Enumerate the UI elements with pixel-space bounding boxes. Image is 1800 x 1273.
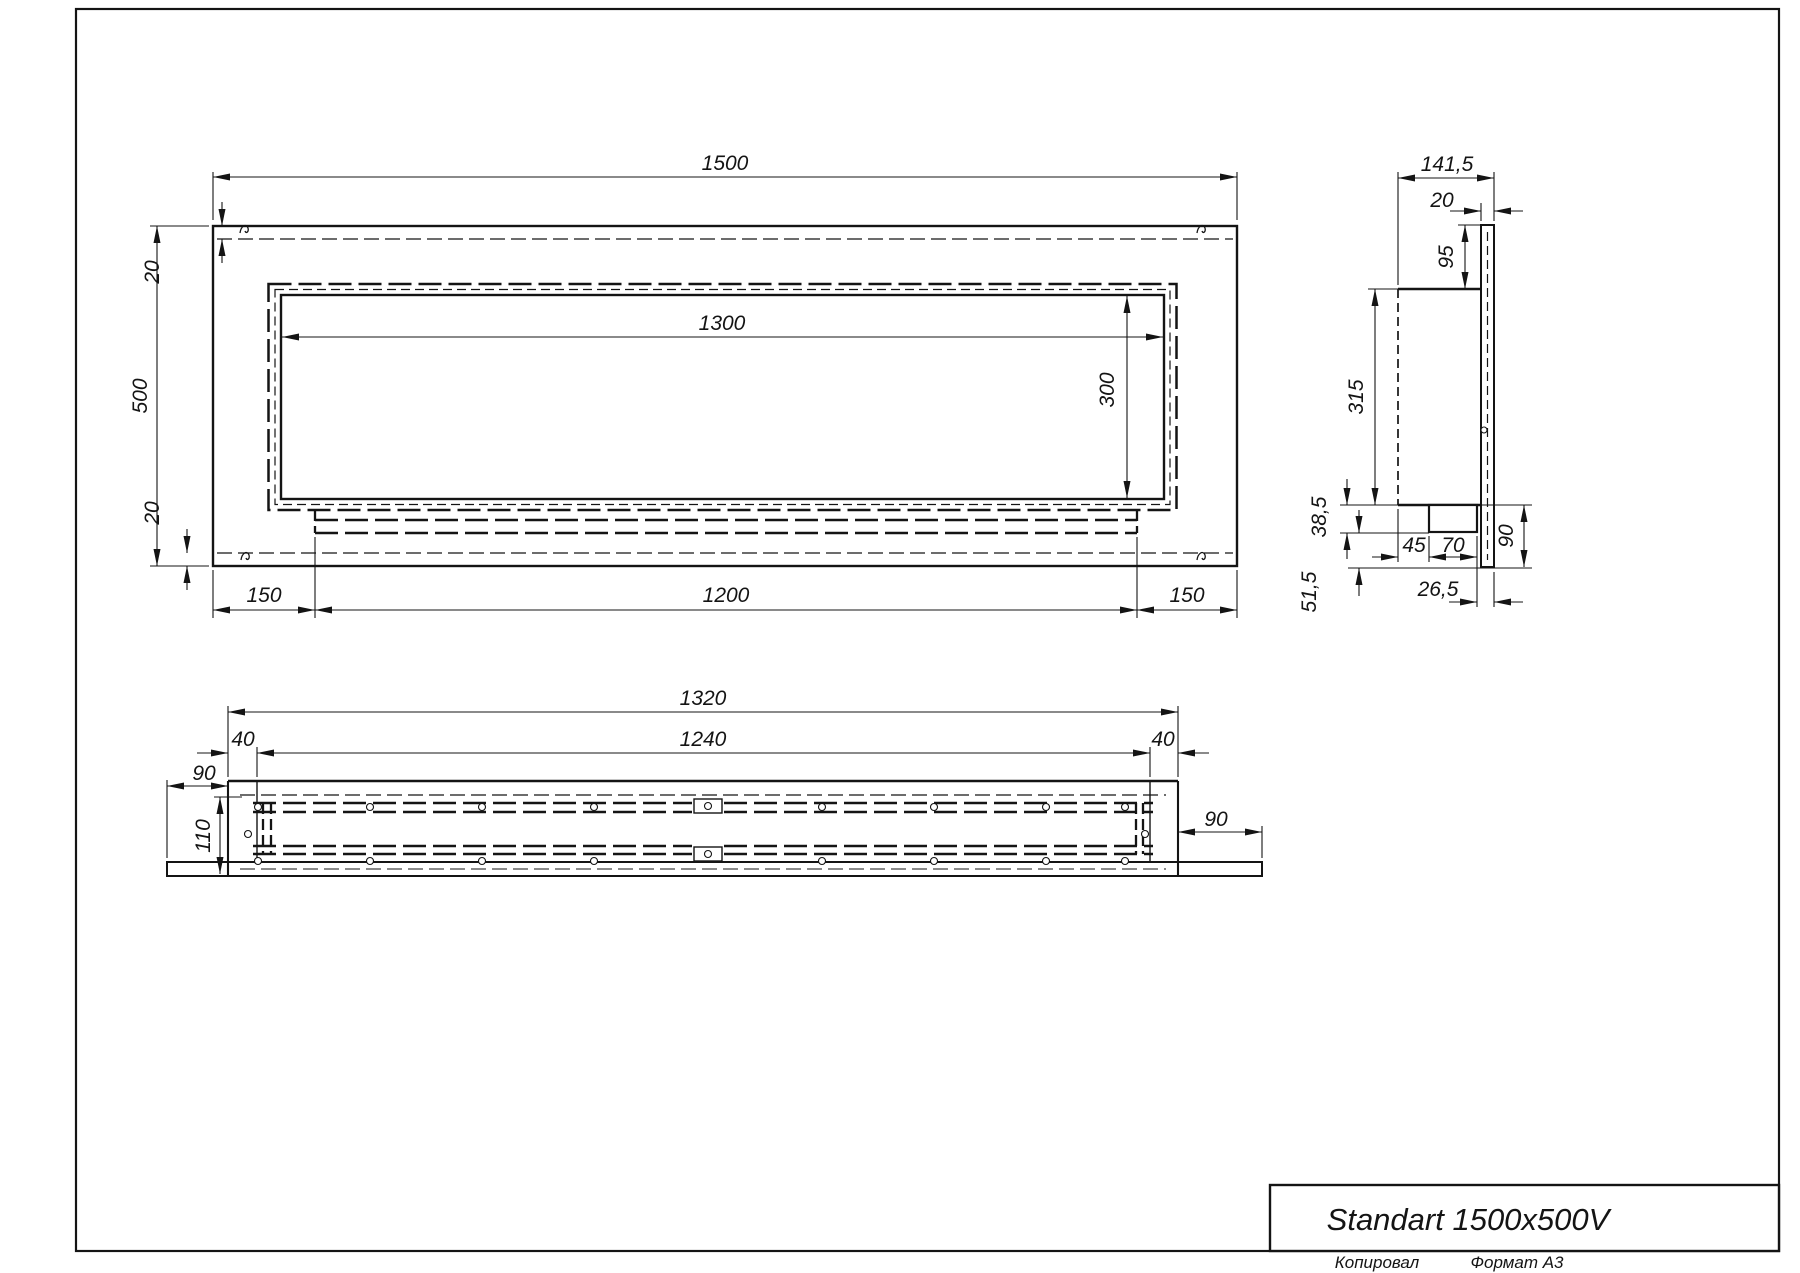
sheet-footer: Копировал Формат А3 xyxy=(1335,1253,1564,1272)
drawing-canvas: 1500 500 20 20 1300 300 150 1200 150 xyxy=(0,0,1800,1273)
dim-bottom-inner-width: 1240 xyxy=(680,728,727,751)
footer-format-label: Формат А3 xyxy=(1470,1253,1564,1272)
dim-side-bottom-drop: 51,5 xyxy=(1298,571,1321,612)
dim-front-inset-bottom: 20 xyxy=(141,501,164,526)
dim-bottom-lip-left: 90 xyxy=(192,762,216,785)
dim-side-step-width: 70 xyxy=(1441,534,1465,557)
dim-front-width: 1500 xyxy=(702,152,749,175)
weld-mark-icon xyxy=(1197,553,1205,560)
dim-side-drop: 90 xyxy=(1495,524,1518,548)
dim-front-height: 500 xyxy=(129,378,152,413)
dim-side-depth: 141,5 xyxy=(1421,153,1474,176)
sheet-frame xyxy=(76,9,1779,1251)
dim-side-flange: 95 xyxy=(1435,245,1458,269)
weld-mark-icon xyxy=(241,553,249,560)
side-view: 141,5 20 95 315 38,5 51,5 45 70 90 26,5 xyxy=(1298,153,1532,612)
front-view: 1500 500 20 20 1300 300 150 1200 150 xyxy=(129,152,1237,618)
dim-bottom-lip-right: 90 xyxy=(1204,808,1228,831)
dim-side-body: 315 xyxy=(1345,379,1368,414)
dim-opening-width: 1300 xyxy=(699,312,746,335)
dim-bottom-outer-width: 1320 xyxy=(680,687,727,710)
dim-margin-left: 150 xyxy=(246,584,281,607)
dim-side-edge-offset: 26,5 xyxy=(1417,578,1459,601)
dim-opening-height: 300 xyxy=(1096,372,1119,407)
dim-tray-width: 1200 xyxy=(703,584,750,607)
dim-bottom-depth: 110 xyxy=(192,819,215,853)
dim-side-step-height: 38,5 xyxy=(1308,496,1331,537)
dim-front-inset-top: 20 xyxy=(141,260,164,285)
dim-margin-right: 150 xyxy=(1169,584,1204,607)
dim-side-step-offset: 45 xyxy=(1402,534,1426,557)
bottom-view: 1320 1240 40 40 90 90 110 xyxy=(167,687,1262,876)
drawing-title: Standart 1500x500V xyxy=(1327,1202,1613,1237)
mount-hole-icon xyxy=(1481,427,1487,433)
dim-bottom-wall-left: 40 xyxy=(231,728,255,751)
dim-side-wall: 20 xyxy=(1429,189,1454,212)
title-block: Standart 1500x500V xyxy=(1270,1185,1779,1251)
drawing-sheet: 1500 500 20 20 1300 300 150 1200 150 xyxy=(0,0,1800,1273)
footer-copied-label: Копировал xyxy=(1335,1253,1420,1272)
dim-bottom-wall-right: 40 xyxy=(1151,728,1175,751)
